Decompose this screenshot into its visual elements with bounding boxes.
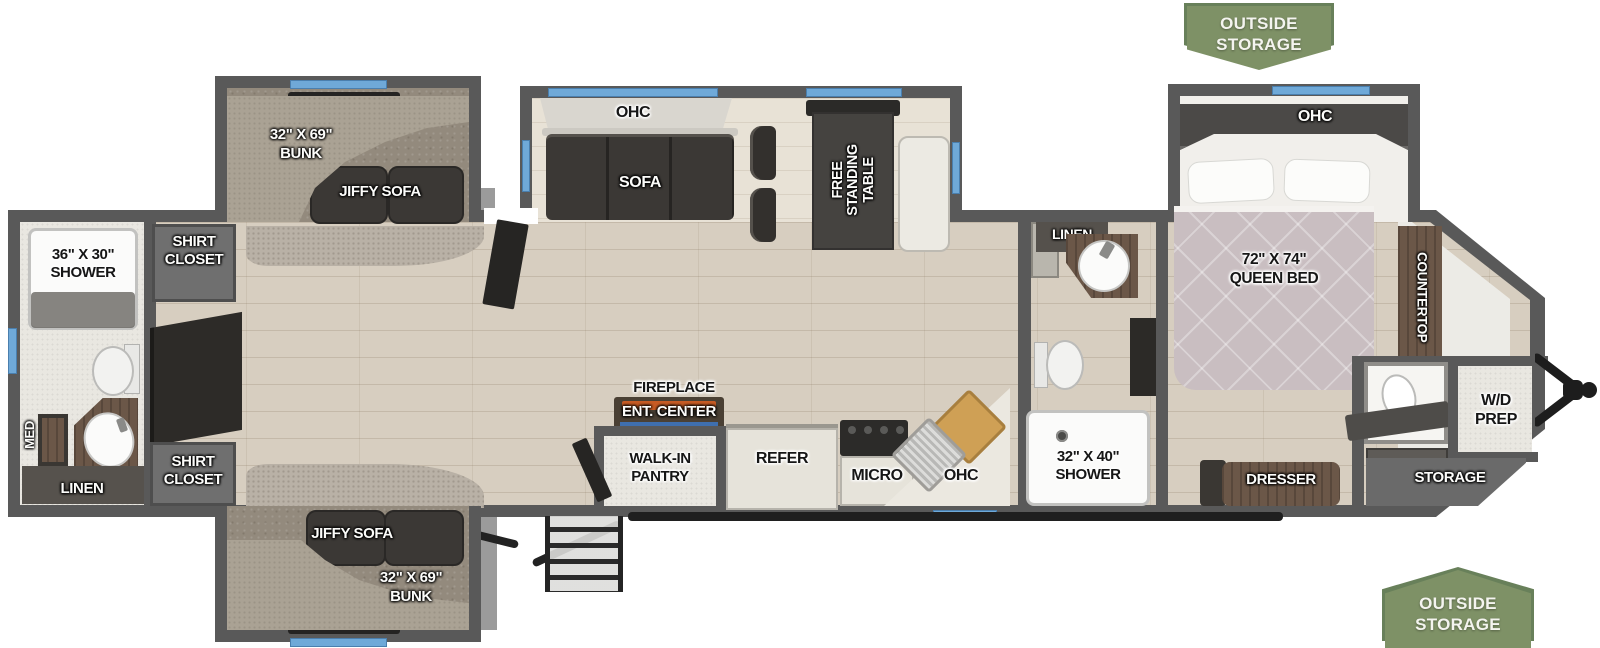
- pantry-wall-top: [594, 426, 726, 436]
- dinette-window-side-right: [952, 142, 960, 194]
- entry-steps: [545, 516, 623, 592]
- bunk-top-label: BUNK: [246, 146, 356, 162]
- bunk-top-dims-label: 32" X 69": [246, 127, 356, 143]
- wd-prep-label1: W/D: [1460, 392, 1532, 409]
- dinette-window-left: [548, 88, 718, 97]
- badge-line: OUTSIDE: [1220, 13, 1298, 34]
- bedroom-window: [1272, 86, 1370, 95]
- stove-burner: [848, 426, 856, 434]
- wd-prep-label2: PREP: [1460, 411, 1532, 428]
- badge-line: OUTSIDE: [1419, 593, 1497, 614]
- bunk-bottom-sofa-label: JIFFY SOFA: [292, 526, 412, 542]
- mid-shower-head: [1056, 430, 1068, 442]
- bedroom-ohc-label: OHC: [1280, 108, 1350, 125]
- dinette-window-side-left: [522, 140, 530, 192]
- refer-label: REFER: [736, 450, 828, 467]
- fireplace-label: FIREPLACE: [620, 380, 728, 396]
- micro-label: MICRO: [838, 467, 916, 484]
- outside-storage-badge-top-face: OUTSIDE STORAGE: [1187, 6, 1331, 70]
- shirt-closet-top-label1: SHIRT: [150, 234, 238, 250]
- shirt-closet-top-label2: CLOSET: [150, 252, 238, 268]
- awning-rail: [628, 512, 1283, 521]
- pillow: [1187, 158, 1275, 204]
- countertop-label: COUNTERTOP: [1414, 233, 1429, 361]
- rv-floorplan: OUTSIDE STORAGE OUTSIDE STORAGE 36" X 30…: [0, 0, 1600, 648]
- rear-wall-window: [8, 328, 17, 374]
- rear-shower-glass: [31, 292, 135, 328]
- badge-line: STORAGE: [1415, 614, 1501, 635]
- sofa-label: SOFA: [600, 174, 680, 191]
- bed-name-label: QUEEN BED: [1210, 271, 1338, 288]
- dinette-window-right: [806, 88, 902, 97]
- mid-shower-dims-label: 32" X 40": [1035, 449, 1141, 465]
- bunk-bottom-label: BUNK: [356, 589, 466, 605]
- shirt-closet-bottom-label2: CLOSET: [148, 472, 238, 488]
- bunk-bottom-dims-label: 32" X 69": [356, 570, 466, 586]
- kitchen-ohc-label: OHC: [928, 467, 994, 484]
- wd-wall-left: [1448, 356, 1458, 462]
- med-cabinet: [38, 414, 68, 466]
- dinette-ohc-label: OHC: [598, 104, 668, 121]
- dinette-chair: [750, 126, 776, 180]
- queen-bed: [1174, 206, 1374, 390]
- dinette-chair: [750, 188, 776, 242]
- mid-shower-label: SHOWER: [1035, 467, 1141, 483]
- bed-dims-label: 72" X 74": [1214, 252, 1334, 269]
- badge-line: STORAGE: [1216, 34, 1302, 55]
- rear-shower-dims-label: 36" X 30": [33, 247, 133, 263]
- bunk-bottom-window: [290, 638, 387, 647]
- pantry-label2: PANTRY: [606, 469, 714, 485]
- pillow: [1283, 159, 1370, 204]
- mid-bath-door: [1130, 318, 1156, 396]
- rear-shower-label: SHOWER: [33, 265, 133, 281]
- pantry-label1: WALK-IN: [606, 451, 714, 467]
- wardrobe: [150, 312, 242, 446]
- dresser-label: DRESSER: [1224, 472, 1338, 488]
- storage-label: STORAGE: [1390, 470, 1510, 486]
- hitch: [1535, 350, 1599, 430]
- outside-storage-badge-bottom-face: OUTSIDE STORAGE: [1385, 570, 1531, 648]
- shirt-closet-bottom-label1: SHIRT: [148, 454, 238, 470]
- med-cabinet-label: MED: [23, 411, 37, 459]
- ent-center-label: ENT. CENTER: [612, 404, 726, 420]
- mid-toilet-bowl: [1046, 340, 1084, 390]
- rear-toilet-bowl: [92, 346, 134, 396]
- bunk-top-window: [290, 80, 387, 89]
- bunk-top-sofa-label: JIFFY SOFA: [320, 184, 440, 200]
- wd-wall-top: [1448, 356, 1540, 366]
- mid-bath-wall-right: [1156, 222, 1168, 505]
- free-standing-table-label: FREE STANDING TABLE: [802, 126, 906, 234]
- rear-linen-label: LINEN: [27, 481, 137, 497]
- counter-bottom-left: [246, 464, 484, 508]
- dinette-bench: [898, 136, 950, 252]
- pantry-wall-right: [716, 426, 726, 510]
